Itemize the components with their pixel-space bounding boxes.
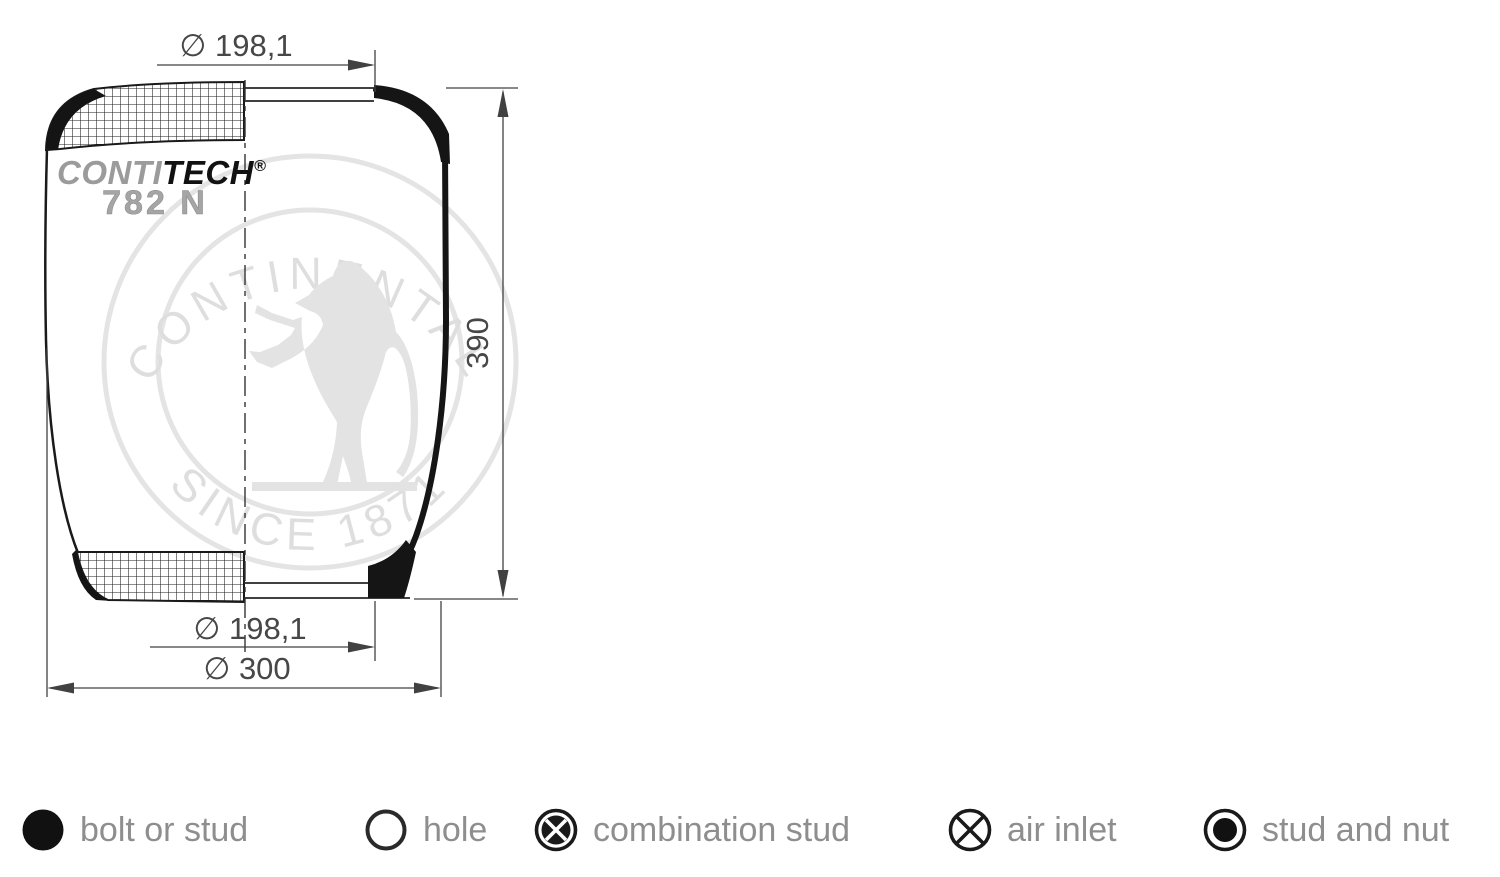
legend-label: combination stud (593, 813, 850, 847)
top-mesh-band (46, 82, 244, 150)
air-spring-technical-drawing-page: CONTINENTAL SINCE 1871 (0, 0, 1500, 877)
legend-item-stud-and-nut: stud and nut (1202, 800, 1449, 860)
legend-label: stud and nut (1262, 813, 1449, 847)
top-plate-lines (244, 88, 374, 101)
legend-item-air-inlet: air inlet (947, 800, 1117, 860)
air-inlet-icon (947, 807, 993, 853)
bellows-left-outline (45, 148, 78, 553)
dim-overall-diameter-label: ∅ 300 (203, 651, 290, 686)
top-right-bead (374, 85, 450, 164)
bottom-mesh-band (77, 552, 244, 602)
legend-item-combination-stud: combination stud (533, 800, 850, 860)
watermark-ground-bar (252, 482, 417, 491)
hole-icon (363, 807, 409, 853)
air-spring-drawing: CONTINENTAL SINCE 1871 (0, 0, 580, 760)
mounting-symbols-legend: bolt or stud hole combination stud air i… (0, 0, 1500, 70)
legend-label: bolt or stud (80, 813, 248, 847)
logo-model-text: 782 N (102, 184, 208, 222)
legend-item-bolt-or-stud: bolt or stud (20, 800, 248, 860)
stud-and-nut-icon (1202, 807, 1248, 853)
combination-stud-icon (533, 807, 579, 853)
dim-height-label: 390 (460, 317, 495, 369)
legend-label: air inlet (1007, 813, 1117, 847)
bolt-or-stud-icon (20, 807, 66, 853)
legend-label: hole (423, 813, 487, 847)
contitech-logo: CONTITECH® 782 N (57, 154, 266, 222)
legend-item-hole: hole (363, 800, 487, 860)
dim-bottom-diameter-label: ∅ 198,1 (193, 611, 306, 646)
